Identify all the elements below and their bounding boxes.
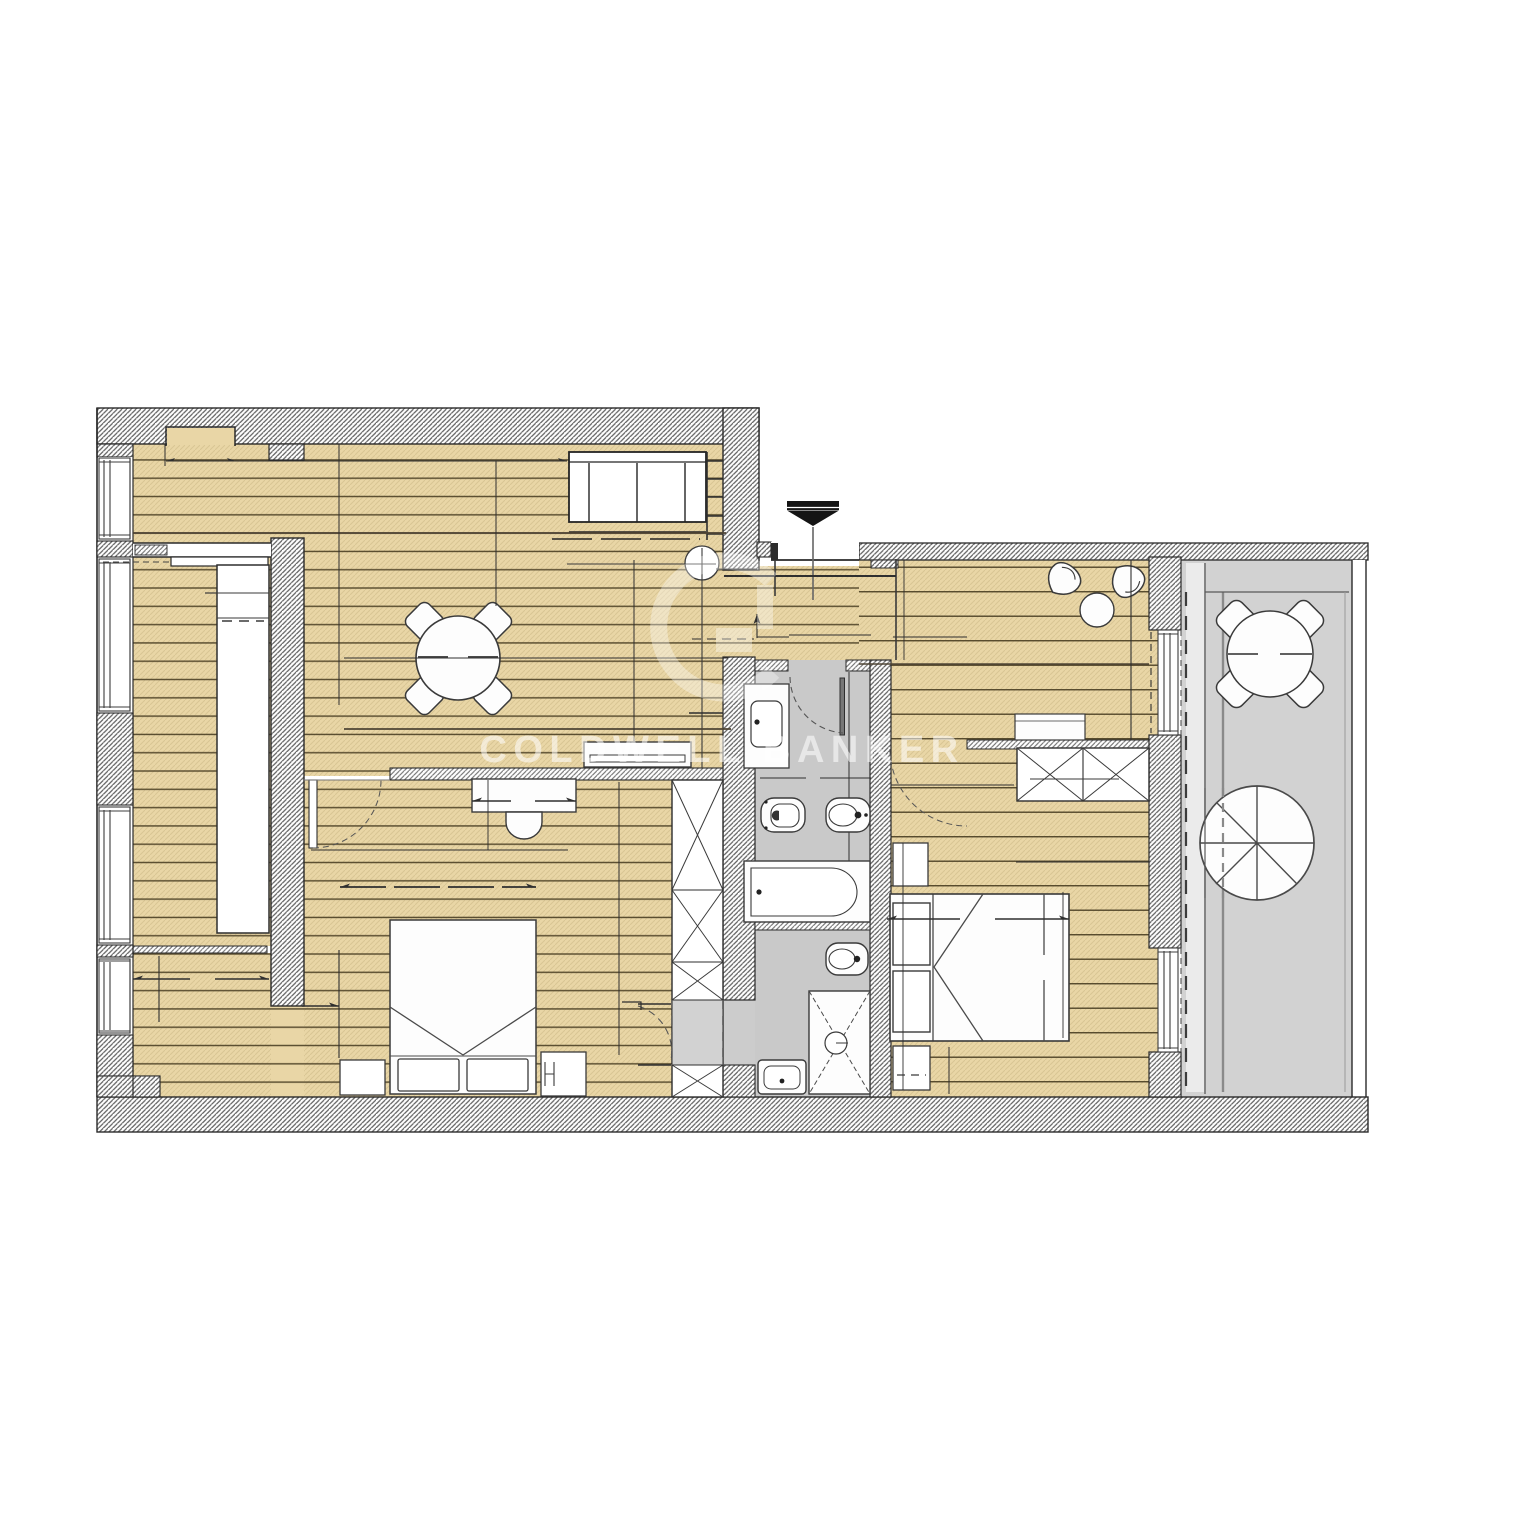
svg-text:COLDWELL BANKER: COLDWELL BANKER <box>479 729 964 771</box>
